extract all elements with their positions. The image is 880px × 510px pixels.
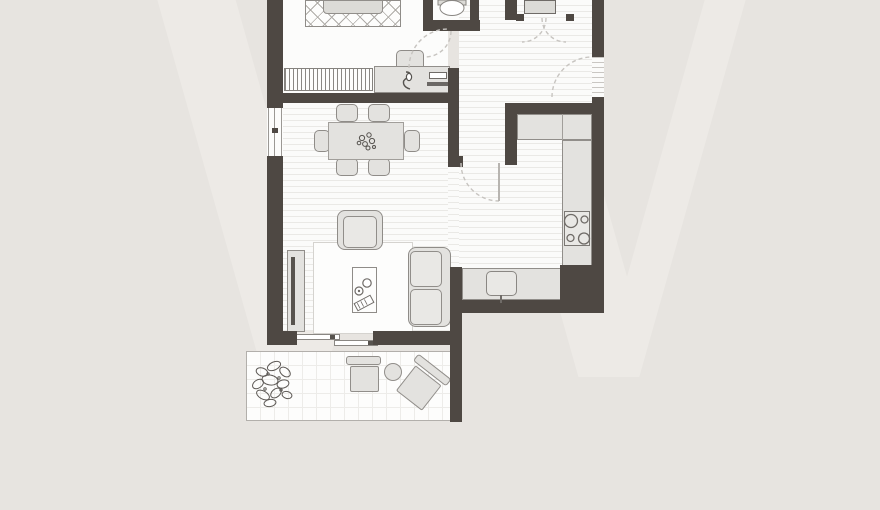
closet-cabinet: [524, 0, 556, 14]
bed: [323, 0, 383, 14]
entrance-threshold: [592, 57, 604, 97]
window-latch: [272, 128, 278, 133]
kitchen-counter-top: [517, 114, 592, 140]
counter-divider: [562, 114, 563, 140]
wall: [267, 331, 297, 345]
armchair-seat: [343, 216, 377, 248]
wall: [592, 97, 604, 270]
laptop-keyboard: [427, 82, 449, 86]
laptop-screen: [429, 72, 447, 79]
kitchen-counter-right: [562, 140, 592, 267]
wall: [267, 156, 283, 345]
tv: [291, 257, 295, 325]
sliding-door-handle: [330, 335, 335, 339]
closet-hinge-left: [516, 14, 524, 21]
dining-chair: [336, 158, 358, 176]
wall: [448, 156, 463, 167]
wall: [373, 331, 460, 345]
wall: [450, 300, 560, 313]
stove: [564, 211, 590, 246]
wardrobe: [284, 68, 373, 91]
wall: [505, 103, 517, 165]
wall: [470, 0, 479, 20]
wall: [560, 265, 604, 313]
dining-chair: [336, 104, 358, 122]
wall: [267, 0, 283, 108]
balcony-lounge-chair-seat: [350, 366, 379, 392]
window-line: [268, 108, 269, 156]
dining-chair: [404, 130, 420, 152]
sink: [486, 271, 517, 296]
dining-chair: [368, 104, 390, 122]
floor-plan-canvas: W: [0, 0, 880, 510]
wall: [505, 103, 604, 114]
wall: [423, 0, 433, 22]
dining-chair: [368, 158, 390, 176]
wall: [592, 0, 604, 57]
tv-sideboard: [287, 250, 305, 332]
coffee-table: [352, 267, 377, 313]
sofa-cushion: [410, 289, 442, 325]
desk: [374, 66, 450, 93]
wall: [448, 68, 459, 167]
wall: [283, 93, 448, 103]
wall: [505, 0, 517, 20]
sofa-cushion: [410, 251, 442, 287]
dining-table: [328, 122, 404, 160]
closet-hinge-right: [566, 14, 574, 21]
wall: [423, 20, 480, 31]
window-line: [281, 108, 282, 156]
balcony-lounge-chair-back: [346, 356, 381, 365]
